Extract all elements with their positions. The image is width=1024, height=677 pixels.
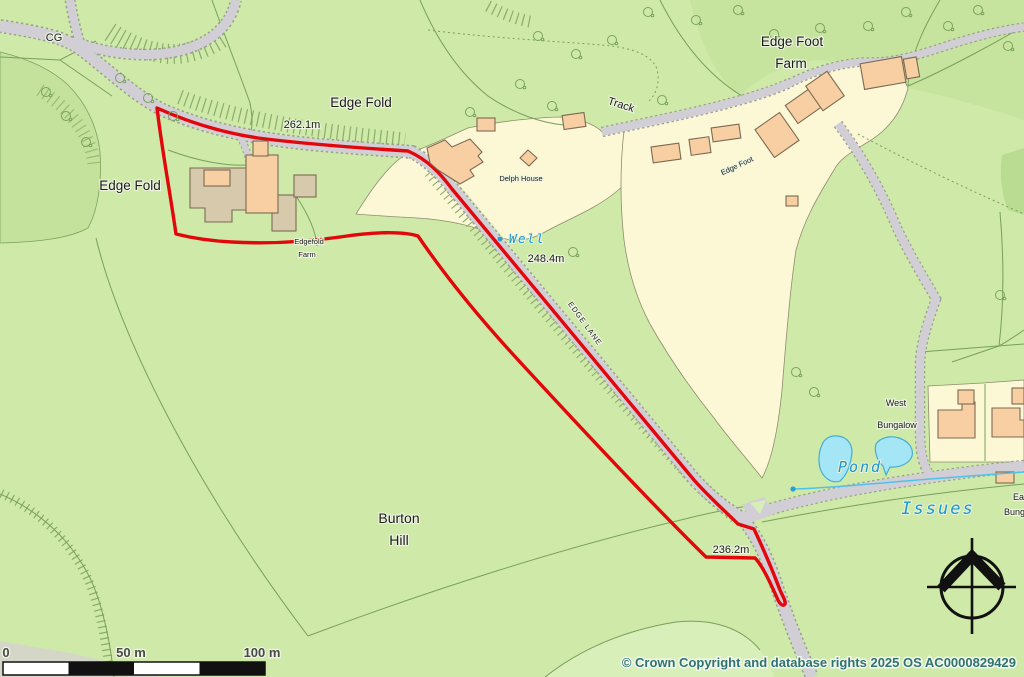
scale-tick-50: 50 m [116, 645, 146, 660]
label-edge-foot-farm-2: Farm [775, 56, 807, 71]
map-viewport: CG Edge Fold 262.1m Edge Fold Delph Hous… [0, 0, 1024, 677]
label-delph-house: Delph House [499, 174, 542, 183]
map-canvas: CG Edge Fold 262.1m Edge Fold Delph Hous… [0, 0, 1024, 677]
label-edge-foot-farm-1: Edge Foot [761, 34, 824, 49]
scale-tick-0: 0 [2, 645, 9, 660]
label-edge-fold-top: Edge Fold [330, 95, 392, 110]
issues-source-dot [790, 486, 795, 491]
label-burton-hill-2: Hill [389, 532, 408, 548]
spot-height-248: 248.4m [528, 253, 565, 265]
label-east-bungalow-2: Bungalow [1004, 507, 1024, 517]
label-west-bungalow-1: West [886, 398, 907, 408]
scale-tick-100: 100 m [244, 645, 281, 660]
label-edgefold-farm-2: Farm [298, 250, 316, 259]
building-east-bungalow [992, 408, 1024, 437]
label-pond: Pond [838, 458, 882, 476]
label-edgefold-farm-1: Edgefold [294, 237, 324, 246]
building-edgefold-main [246, 155, 278, 213]
well-dot [498, 237, 503, 242]
label-well: Well [509, 231, 545, 246]
label-burton-hill-1: Burton [378, 510, 419, 526]
label-west-bungalow-2: Bungalow [877, 420, 917, 430]
label-edge-fold-left: Edge Fold [99, 178, 161, 193]
label-issues: Issues [901, 499, 974, 519]
spot-height-236: 236.2m [713, 544, 750, 556]
label-cg: CG [46, 32, 63, 44]
copyright-text: © Crown Copyright and database rights 20… [622, 655, 1016, 670]
spot-height-262: 262.1m [284, 119, 321, 131]
label-east-bungalow-1: East [1013, 492, 1024, 502]
